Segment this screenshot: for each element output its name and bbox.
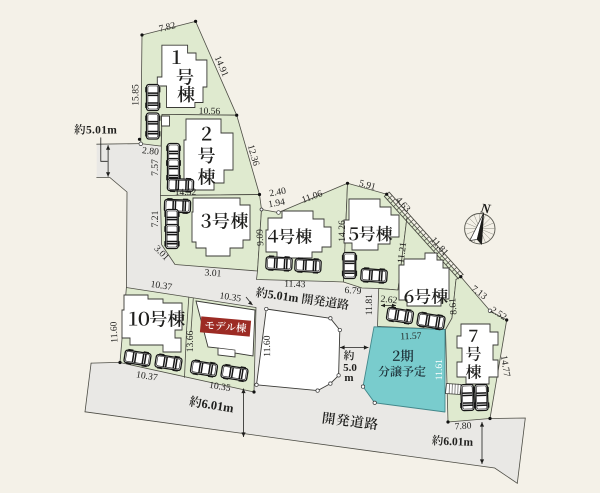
svg-text:5.01m: 5.01m xyxy=(86,125,117,137)
svg-text:11.61: 11.61 xyxy=(434,359,445,380)
svg-text:11.43: 11.43 xyxy=(284,279,306,291)
svg-text:7.80: 7.80 xyxy=(454,420,472,432)
svg-text:11.60: 11.60 xyxy=(108,321,120,343)
svg-text:7.21: 7.21 xyxy=(150,210,161,227)
svg-text:15.85: 15.85 xyxy=(130,84,141,106)
svg-text:11.60: 11.60 xyxy=(262,335,273,357)
svg-text:7.57: 7.57 xyxy=(150,159,161,176)
svg-text:2.62: 2.62 xyxy=(380,294,398,307)
svg-text:10.56: 10.56 xyxy=(199,106,221,117)
svg-text:3.01: 3.01 xyxy=(204,267,222,279)
svg-text:8.61: 8.61 xyxy=(447,297,459,315)
svg-text:14.26: 14.26 xyxy=(337,220,348,242)
svg-text:2.80: 2.80 xyxy=(141,145,159,158)
svg-text:m: m xyxy=(344,372,353,384)
svg-text:6.79: 6.79 xyxy=(344,285,362,297)
svg-text:13.66: 13.66 xyxy=(185,331,196,353)
svg-text:9.09: 9.09 xyxy=(255,229,267,247)
svg-text:11.57: 11.57 xyxy=(400,331,422,343)
svg-text:11.81: 11.81 xyxy=(364,294,375,315)
svg-text:14.52: 14.52 xyxy=(175,187,197,198)
svg-text:6.01m: 6.01m xyxy=(443,436,474,449)
